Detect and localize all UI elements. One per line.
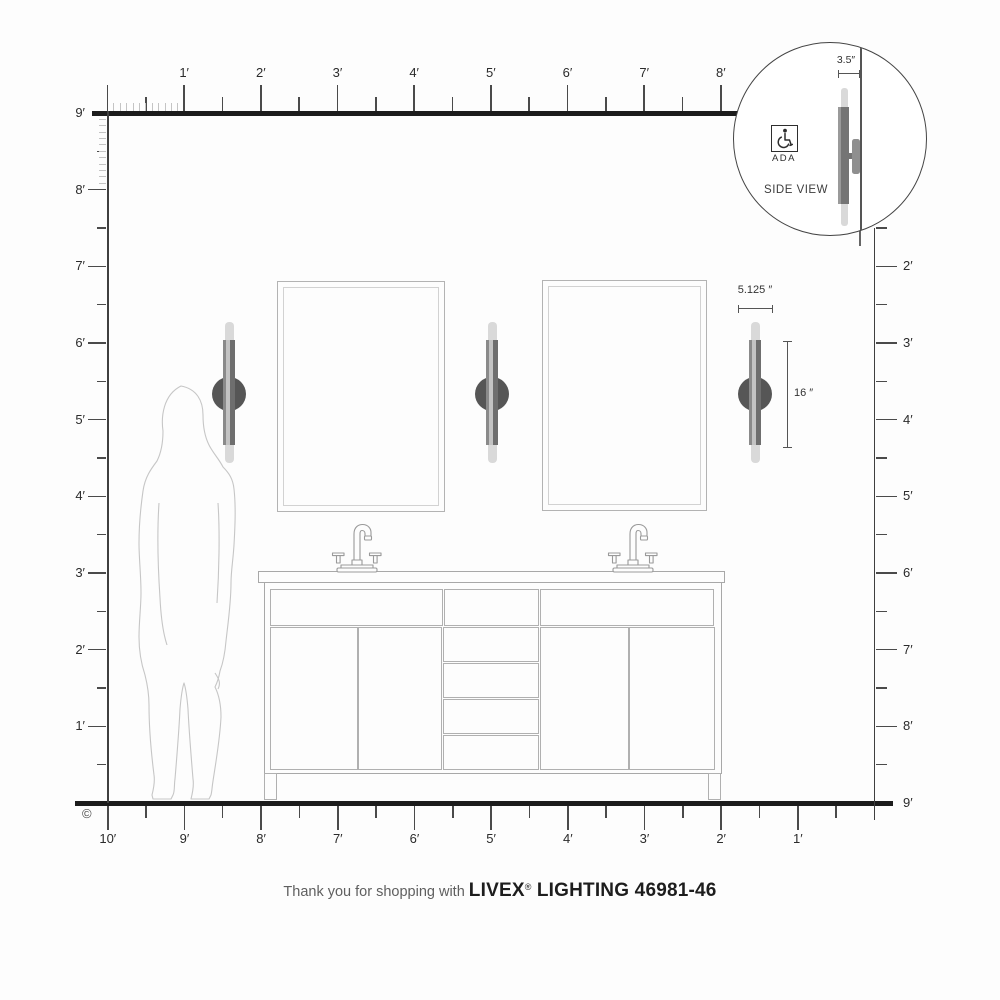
right-ruler-label: 6′ bbox=[903, 566, 933, 580]
ruler-tick bbox=[222, 806, 223, 818]
ruler-tick bbox=[605, 806, 606, 818]
ruler-tick bbox=[876, 764, 887, 765]
vanity-door-4 bbox=[629, 627, 715, 770]
ruler-tick bbox=[260, 806, 262, 830]
left-wall-line bbox=[107, 111, 109, 803]
right-ruler-label: 2′ bbox=[903, 259, 933, 273]
ruler-inch-tick bbox=[99, 151, 106, 152]
left-ruler-label: 3′ bbox=[38, 566, 85, 580]
top-ruler-label: 7′ bbox=[630, 66, 658, 80]
vanity-rail-center bbox=[444, 589, 539, 626]
ruler-inch-tick bbox=[99, 164, 106, 165]
vanity-rail-right bbox=[540, 589, 714, 626]
ruler-tick bbox=[720, 806, 722, 830]
ruler-tick bbox=[490, 806, 492, 830]
ruler-tick bbox=[337, 85, 339, 111]
diagram-canvas: 1′2′3′4′5′6′7′8′9′8′7′6′5′4′3′2′1′2′3′4′… bbox=[0, 0, 1000, 1000]
wall-sconce-1 bbox=[212, 322, 246, 463]
footer-product: LIGHTING 46981-46 bbox=[531, 880, 716, 901]
top-ruler-label: 8′ bbox=[707, 66, 735, 80]
ruler-tick bbox=[720, 85, 722, 111]
side-view-inset: 3.5″ ADA SIDE VIEW bbox=[733, 42, 927, 236]
wall-sconce-2 bbox=[475, 322, 509, 463]
fixture-width-dimline bbox=[738, 308, 773, 309]
ruler-inch-tick bbox=[139, 103, 140, 111]
ruler-inch-tick bbox=[133, 103, 134, 111]
ruler-inch-tick bbox=[99, 119, 106, 120]
ruler-inch-tick bbox=[99, 138, 106, 139]
ruler-tick bbox=[567, 806, 569, 830]
ada-label: ADA bbox=[762, 153, 806, 164]
inset-wall-line bbox=[860, 43, 862, 235]
bottom-ruler-label: 3′ bbox=[628, 832, 660, 846]
ruler-inch-tick bbox=[99, 144, 106, 145]
inset-mount-plate bbox=[852, 139, 860, 174]
ruler-tick bbox=[97, 304, 106, 305]
ruler-tick bbox=[375, 97, 376, 111]
copyright-symbol: © bbox=[82, 806, 92, 821]
ada-badge bbox=[771, 125, 798, 152]
bottom-ruler-label: 6′ bbox=[398, 832, 430, 846]
ruler-tick bbox=[145, 806, 146, 818]
ruler-tick bbox=[88, 419, 106, 421]
top-ruler-label: 2′ bbox=[247, 66, 275, 80]
ruler-tick bbox=[88, 342, 106, 344]
left-ruler-label: 4′ bbox=[38, 489, 85, 503]
ruler-tick bbox=[413, 85, 415, 111]
inset-sconce-body bbox=[838, 107, 849, 204]
mirror-left bbox=[277, 281, 445, 512]
ruler-inch-tick bbox=[177, 103, 178, 111]
vanity-door-1 bbox=[270, 627, 358, 770]
bottom-ruler-label: 10′ bbox=[92, 832, 124, 846]
ruler-tick bbox=[97, 227, 106, 228]
ruler-inch-tick bbox=[120, 103, 121, 111]
bottom-ruler-label: 9′ bbox=[168, 832, 200, 846]
ruler-tick bbox=[876, 419, 897, 421]
ruler-tick bbox=[88, 266, 106, 268]
ruler-tick bbox=[97, 534, 106, 535]
ruler-tick bbox=[797, 806, 799, 830]
vanity-leg-left bbox=[264, 773, 277, 800]
ruler-tick bbox=[644, 806, 646, 830]
wall-sconce-3 bbox=[738, 322, 772, 463]
ruler-tick bbox=[876, 457, 887, 458]
ruler-tick bbox=[299, 806, 300, 818]
left-ruler-label: 7′ bbox=[38, 259, 85, 273]
faucet-left bbox=[329, 522, 385, 574]
ruler-tick bbox=[567, 85, 569, 111]
top-ruler-label: 6′ bbox=[554, 66, 582, 80]
right-ruler-label: 3′ bbox=[903, 336, 933, 350]
inset-bulb-bottom bbox=[841, 201, 848, 226]
right-ruler-label: 7′ bbox=[903, 643, 933, 657]
ruler-tick bbox=[876, 381, 887, 382]
ruler-tick bbox=[88, 572, 106, 574]
left-ruler-label: 2′ bbox=[38, 643, 85, 657]
ruler-tick bbox=[107, 85, 109, 111]
fixture-height-label: 16 ″ bbox=[794, 387, 813, 399]
ruler-tick bbox=[222, 97, 223, 111]
ceiling-line bbox=[92, 111, 742, 116]
ruler-inch-tick bbox=[99, 176, 106, 177]
ruler-tick bbox=[88, 726, 106, 728]
ruler-tick bbox=[107, 806, 109, 830]
ruler-tick bbox=[88, 496, 106, 498]
footer-text: Thank you for shopping with LIVEX® LIGHT… bbox=[0, 880, 1000, 902]
fixture-height-dimline bbox=[787, 341, 788, 448]
ruler-tick bbox=[876, 304, 887, 305]
right-ruler-label: 9′ bbox=[903, 796, 933, 810]
top-ruler-label: 4′ bbox=[400, 66, 428, 80]
vanity-drawer-2 bbox=[443, 663, 539, 698]
bottom-ruler-label: 1′ bbox=[782, 832, 814, 846]
ruler-tick bbox=[876, 611, 887, 612]
ruler-tick bbox=[452, 806, 453, 818]
vanity-drawer-4 bbox=[443, 735, 539, 770]
ruler-tick bbox=[184, 806, 186, 830]
ruler-tick bbox=[88, 189, 106, 191]
ruler-inch-tick bbox=[152, 103, 153, 111]
mirror-left-inner-frame bbox=[283, 287, 439, 506]
ruler-tick bbox=[528, 97, 529, 111]
inset-dimension-label: 3.5″ bbox=[820, 54, 872, 66]
vanity-drawer-3 bbox=[443, 699, 539, 734]
mirror-right-inner-frame bbox=[548, 286, 701, 505]
ruler-tick bbox=[835, 806, 836, 818]
bottom-ruler-label: 7′ bbox=[322, 832, 354, 846]
bottom-ruler-label: 5′ bbox=[475, 832, 507, 846]
ruler-tick bbox=[682, 806, 683, 818]
ruler-tick bbox=[97, 381, 106, 382]
right-wall-line bbox=[874, 228, 876, 820]
ruler-inch-tick bbox=[99, 125, 106, 126]
right-ruler-label: 5′ bbox=[903, 489, 933, 503]
ruler-tick bbox=[876, 496, 897, 498]
right-ruler-label: 8′ bbox=[903, 719, 933, 733]
ruler-tick bbox=[88, 649, 106, 651]
ruler-tick bbox=[260, 85, 262, 111]
ruler-tick bbox=[876, 342, 897, 344]
ruler-tick bbox=[643, 85, 645, 111]
ruler-tick bbox=[97, 457, 106, 458]
ruler-inch-tick bbox=[99, 132, 106, 133]
left-ruler-label: 8′ bbox=[38, 183, 85, 197]
wheelchair-icon bbox=[772, 126, 797, 151]
vanity-door-3 bbox=[540, 627, 629, 770]
right-ruler-label: 4′ bbox=[903, 413, 933, 427]
faucet-right bbox=[605, 522, 661, 574]
ruler-tick bbox=[876, 649, 897, 651]
ruler-tick bbox=[298, 97, 299, 111]
ruler-tick bbox=[759, 806, 760, 818]
ruler-tick bbox=[605, 97, 606, 111]
ruler-tick bbox=[529, 806, 530, 818]
vanity-door-2 bbox=[358, 627, 442, 770]
vanity-leg-right bbox=[708, 773, 721, 800]
top-ruler-label: 1′ bbox=[170, 66, 198, 80]
vanity-rail-left bbox=[270, 589, 443, 626]
ruler-tick bbox=[876, 227, 887, 228]
side-view-label: SIDE VIEW bbox=[756, 184, 836, 196]
left-ruler-label: 1′ bbox=[38, 719, 85, 733]
footer-thanks: Thank you for shopping with bbox=[283, 884, 464, 900]
ruler-tick bbox=[876, 266, 897, 268]
ruler-tick bbox=[97, 611, 106, 612]
sconce-body bbox=[486, 340, 498, 445]
top-ruler-label: 5′ bbox=[477, 66, 505, 80]
bottom-ruler-label: 2′ bbox=[705, 832, 737, 846]
ruler-tick bbox=[876, 534, 887, 535]
sconce-body bbox=[749, 340, 761, 445]
ruler-tick bbox=[375, 806, 376, 818]
fixture-width-label: 5.125 ″ bbox=[725, 284, 785, 296]
ruler-inch-tick bbox=[99, 157, 106, 158]
ruler-tick bbox=[97, 764, 106, 765]
left-ruler-label: 9′ bbox=[38, 106, 85, 120]
ruler-inch-tick bbox=[99, 170, 106, 171]
bottom-ruler-label: 4′ bbox=[552, 832, 584, 846]
ruler-inch-tick bbox=[126, 103, 127, 111]
footer-brand: LIVEX bbox=[469, 880, 525, 901]
ruler-inch-tick bbox=[171, 103, 172, 111]
ruler-inch-tick bbox=[158, 103, 159, 111]
ruler-inch-tick bbox=[145, 103, 146, 111]
mirror-right bbox=[542, 280, 707, 511]
left-ruler-label: 5′ bbox=[38, 413, 85, 427]
ruler-tick bbox=[183, 85, 185, 111]
ruler-tick bbox=[337, 806, 339, 830]
ruler-tick bbox=[876, 726, 897, 728]
ruler-tick bbox=[876, 572, 897, 574]
ruler-tick bbox=[490, 85, 492, 111]
bottom-ruler-label: 8′ bbox=[245, 832, 277, 846]
ruler-tick bbox=[876, 687, 887, 688]
ruler-inch-tick bbox=[99, 183, 106, 184]
ruler-inch-tick bbox=[113, 103, 114, 111]
ruler-tick bbox=[682, 97, 683, 111]
top-ruler-label: 3′ bbox=[324, 66, 352, 80]
sconce-body bbox=[223, 340, 235, 445]
vanity-drawer-1 bbox=[443, 627, 539, 662]
ruler-tick bbox=[452, 97, 453, 111]
ruler-tick bbox=[414, 806, 416, 830]
ruler-inch-tick bbox=[165, 103, 166, 111]
ruler-tick bbox=[97, 687, 106, 688]
inset-dimline bbox=[838, 73, 860, 74]
left-ruler-label: 6′ bbox=[38, 336, 85, 350]
